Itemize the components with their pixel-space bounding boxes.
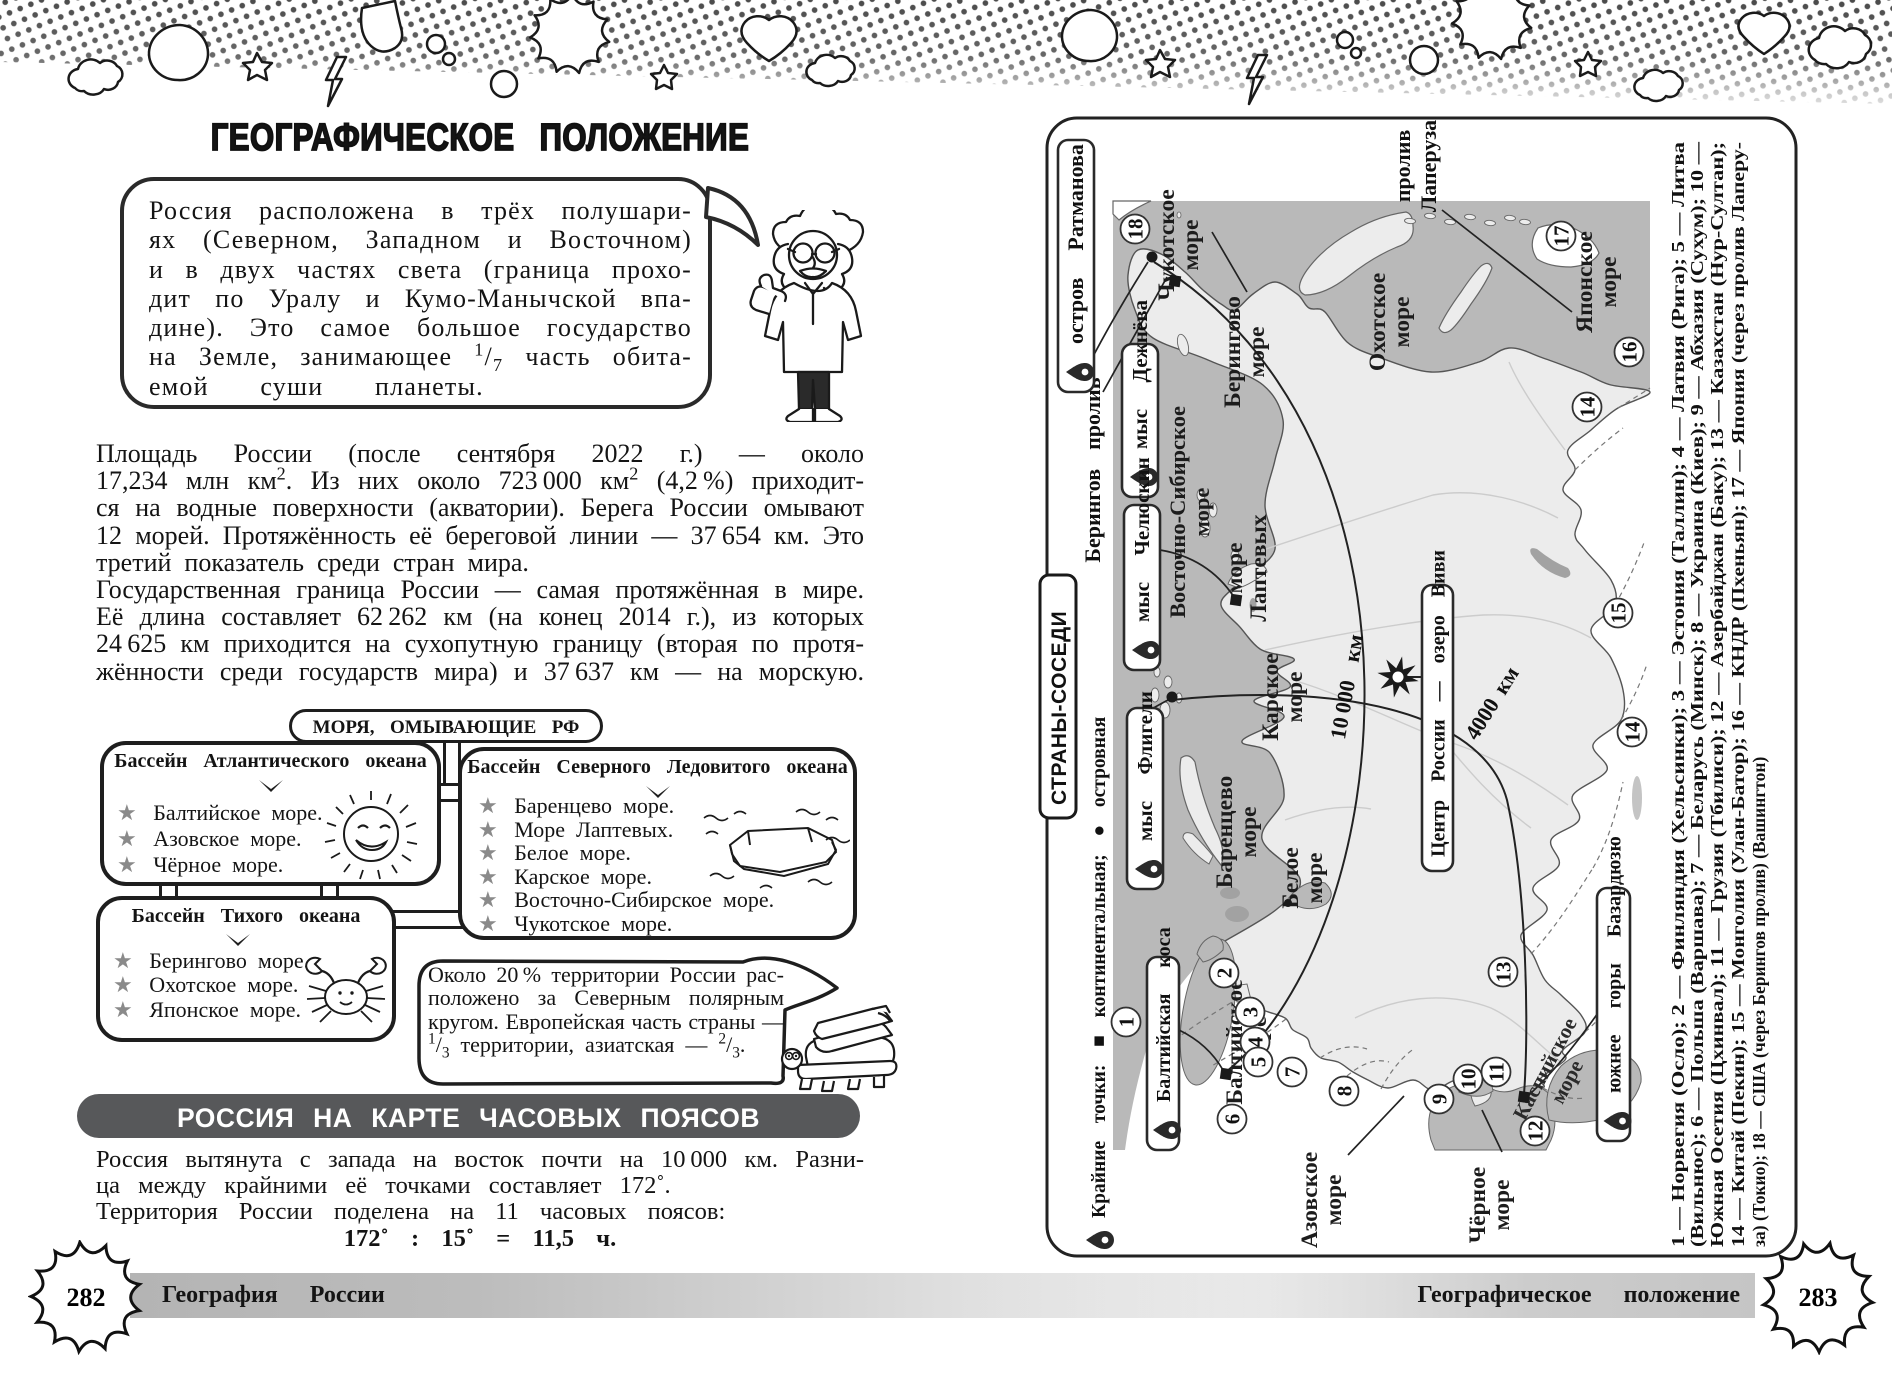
svg-text:Балтийская коса: Балтийская коса xyxy=(1153,927,1175,1102)
svg-text:282: 282 xyxy=(67,1283,106,1312)
svg-text:(Вильнюс); 6 — Польша (Варшава: (Вильнюс); 6 — Польша (Варшава); 7 — Бел… xyxy=(1687,141,1707,1247)
svg-text:мыс Челюскин: мыс Челюскин xyxy=(1130,457,1154,622)
svg-text:Центр России — озеро Виви: Центр России — озеро Виви xyxy=(1428,550,1450,857)
svg-text:Карское: Карское xyxy=(1258,653,1284,740)
svg-text:15: 15 xyxy=(1607,603,1631,624)
svg-text:Охотское: Охотское xyxy=(1365,273,1391,371)
svg-text:Лаперуза: Лаперуза xyxy=(1416,120,1441,212)
svg-text:Южная Осетия (Цхинвал); 11 — Г: Южная Осетия (Цхинвал); 11 — Грузия (Тби… xyxy=(1707,142,1727,1247)
svg-text:1 — Норвегия (Осло); 2 — Финля: 1 — Норвегия (Осло); 2 — Финляндия (Хель… xyxy=(1668,142,1688,1247)
svg-text:4: 4 xyxy=(1244,1036,1268,1047)
svg-text:море: море xyxy=(1389,297,1415,348)
svg-text:2: 2 xyxy=(1213,968,1237,979)
svg-text:море: море xyxy=(1282,672,1308,723)
svg-text:14: 14 xyxy=(1621,721,1645,743)
svg-text:11: 11 xyxy=(1485,1062,1509,1082)
svg-text:южнее горы Базардюзю: южнее горы Базардюзю xyxy=(1604,836,1626,1093)
svg-text:7: 7 xyxy=(1281,1067,1305,1078)
svg-text:Берингов пролив: Берингов пролив xyxy=(1080,377,1105,562)
svg-text:Чёрное: Чёрное xyxy=(1465,1167,1491,1243)
svg-text:мыс Дежнёва: мыс Дежнёва xyxy=(1128,299,1152,449)
svg-text:6: 6 xyxy=(1221,1114,1245,1125)
svg-text:за) (Токио); 18 — США (через Б: за) (Токио); 18 — США (через Берингов пр… xyxy=(1749,757,1769,1247)
svg-text:12: 12 xyxy=(1524,1121,1548,1142)
svg-text:10: 10 xyxy=(1457,1069,1481,1090)
svg-text:море: море xyxy=(1236,807,1262,858)
svg-text:море: море xyxy=(1321,1175,1347,1226)
svg-text:Восточно-Сибирское: Восточно-Сибирское xyxy=(1165,406,1190,618)
svg-text:Японское: Японское xyxy=(1572,231,1598,333)
svg-text:море: море xyxy=(1302,853,1328,904)
svg-text:Крайние точки: ■ континента: Крайние точки: ■ континентальная; ● остр… xyxy=(1089,716,1110,1218)
svg-text:17: 17 xyxy=(1550,226,1574,247)
svg-text:море: море xyxy=(1222,543,1248,594)
svg-text:9: 9 xyxy=(1428,1094,1452,1105)
svg-text:мыс Флигели: мыс Флигели xyxy=(1133,691,1157,841)
svg-text:Лаптевых: Лаптевых xyxy=(1246,514,1272,622)
svg-text:море: море xyxy=(1178,220,1204,271)
svg-text:море: море xyxy=(1189,488,1214,537)
svg-text:море: море xyxy=(1244,327,1270,378)
svg-text:18: 18 xyxy=(1124,219,1148,240)
svg-text:море: море xyxy=(1596,257,1622,308)
svg-text:16: 16 xyxy=(1618,342,1642,363)
svg-text:Берингово: Берингово xyxy=(1220,296,1246,408)
svg-text:Баренцево: Баренцево xyxy=(1212,776,1238,889)
svg-text:море: море xyxy=(1489,1180,1515,1231)
svg-text:13: 13 xyxy=(1492,962,1516,983)
svg-text:3: 3 xyxy=(1239,1007,1263,1018)
svg-text:1: 1 xyxy=(1115,1017,1139,1028)
svg-text:5: 5 xyxy=(1247,1057,1271,1068)
svg-text:Белое: Белое xyxy=(1278,847,1304,908)
svg-text:СТРАНЫ-СОСЕДИ: СТРАНЫ-СОСЕДИ xyxy=(1048,611,1071,805)
svg-text:8: 8 xyxy=(1333,1086,1357,1097)
svg-text:Азовское: Азовское xyxy=(1297,1152,1323,1248)
svg-text:14 — Китай (Пекин); 15 — Монго: 14 — Китай (Пекин); 15 — Монголия (Улан-… xyxy=(1728,142,1748,1247)
svg-text:остров Ратманова: остров Ратманова xyxy=(1063,144,1088,344)
svg-text:пролив: пролив xyxy=(1390,130,1415,203)
svg-text:14: 14 xyxy=(1576,396,1600,418)
